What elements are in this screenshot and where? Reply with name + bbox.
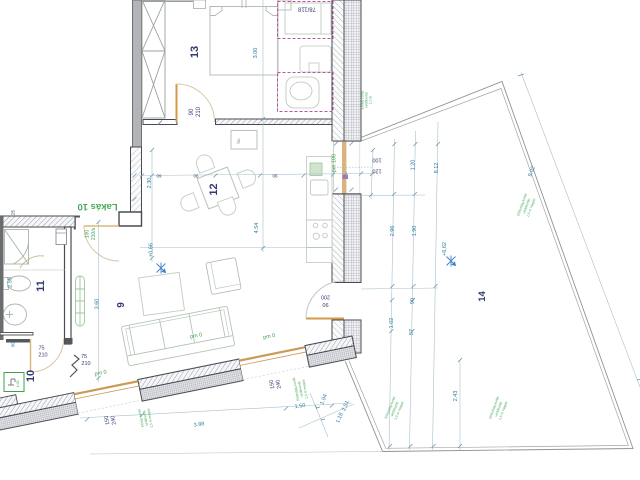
- svg-text:120: 120: [372, 168, 381, 174]
- svg-text:200: 200: [321, 294, 330, 300]
- svg-text:8.12: 8.12: [434, 163, 440, 174]
- svg-text:100: 100: [372, 157, 381, 163]
- svg-text:25: 25: [11, 210, 16, 216]
- svg-text:3.60: 3.60: [95, 299, 101, 310]
- svg-text:210: 210: [38, 353, 47, 359]
- svg-text:3.00: 3.00: [253, 48, 259, 59]
- svg-text:2.96: 2.96: [390, 226, 396, 237]
- svg-text:57: 57: [409, 329, 415, 335]
- svg-text:pm 100: pm 100: [332, 154, 338, 172]
- svg-text:1.90: 1.90: [412, 226, 418, 237]
- svg-text:100: 100: [85, 230, 91, 239]
- svg-text:80: 80: [11, 342, 16, 348]
- svg-text:1.02: 1.02: [389, 318, 395, 329]
- svg-text:2.55: 2.55: [8, 277, 14, 288]
- svg-text:75: 75: [81, 354, 87, 360]
- svg-text:90: 90: [322, 301, 328, 307]
- svg-text:Lakás 10: Lakás 10: [77, 201, 117, 212]
- svg-text:90: 90: [272, 174, 278, 179]
- svg-text:12: 12: [208, 183, 220, 195]
- svg-text:75: 75: [38, 346, 44, 352]
- svg-text:1.20: 1.20: [411, 160, 417, 171]
- svg-text:90: 90: [189, 108, 195, 115]
- svg-text:1.00: 1.00: [16, 381, 20, 388]
- svg-text:13: 13: [189, 46, 201, 58]
- svg-text:60: 60: [156, 174, 162, 179]
- svg-text:4.54: 4.54: [254, 223, 260, 234]
- svg-text:+6,62: +6,62: [442, 242, 448, 256]
- svg-text:11: 11: [35, 280, 47, 292]
- svg-text:14: 14: [477, 291, 488, 302]
- svg-text:90: 90: [410, 298, 416, 304]
- svg-text:78/118: 78/118: [297, 6, 316, 12]
- svg-text:210: 210: [81, 361, 90, 367]
- svg-text:2.43: 2.43: [453, 391, 459, 402]
- svg-text:210/s: 210/s: [91, 227, 97, 240]
- svg-text:9: 9: [116, 302, 127, 308]
- svg-text:2.30: 2.30: [147, 178, 153, 189]
- svg-text:1,0 m: 1,0 m: [369, 96, 373, 105]
- svg-text:10: 10: [25, 370, 37, 382]
- svg-text:210: 210: [196, 106, 202, 117]
- svg-text:+0,66: +0,66: [149, 243, 155, 257]
- svg-text:hu: hu: [236, 138, 241, 144]
- svg-text:90: 90: [193, 174, 199, 179]
